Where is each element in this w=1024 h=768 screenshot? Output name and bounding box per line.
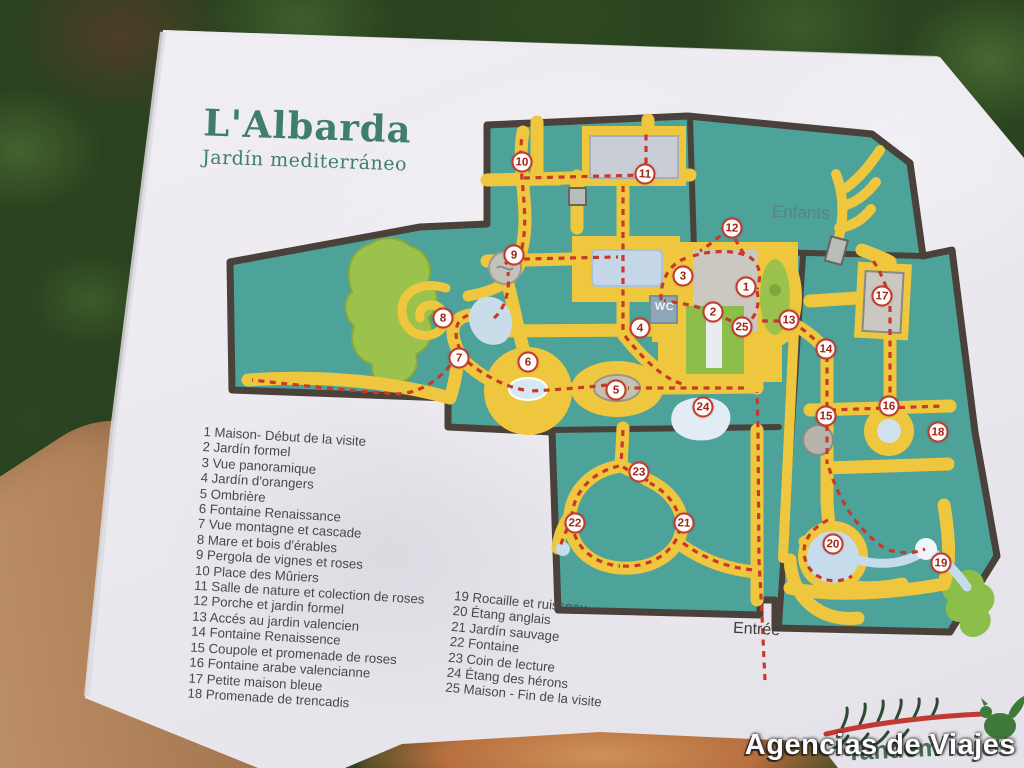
enfants-label: Enfants xyxy=(772,202,830,224)
upper-pool xyxy=(592,250,662,286)
renaissance-fountain xyxy=(509,378,547,400)
wc-label: WC xyxy=(651,301,678,314)
arab-fountain xyxy=(877,419,901,443)
watermark-text: Agencias de Viajes xyxy=(745,729,1016,762)
entree-label: Entrée xyxy=(733,620,781,640)
map-title: L'Albarda xyxy=(203,100,413,151)
small-building-a xyxy=(569,188,586,205)
legend-column-left: 1 Maison- Début de la visite2 Jardín for… xyxy=(187,424,434,715)
small-fountain xyxy=(556,542,570,556)
legend-column-right: 19 Rocaille et ruisseau20 Étang anglais2… xyxy=(445,588,611,710)
map-title-block: L'Albarda Jardín mediterráneo xyxy=(202,100,413,175)
photo-scene: L'Albarda Jardín mediterráneo 1 Maison- … xyxy=(0,0,1024,768)
